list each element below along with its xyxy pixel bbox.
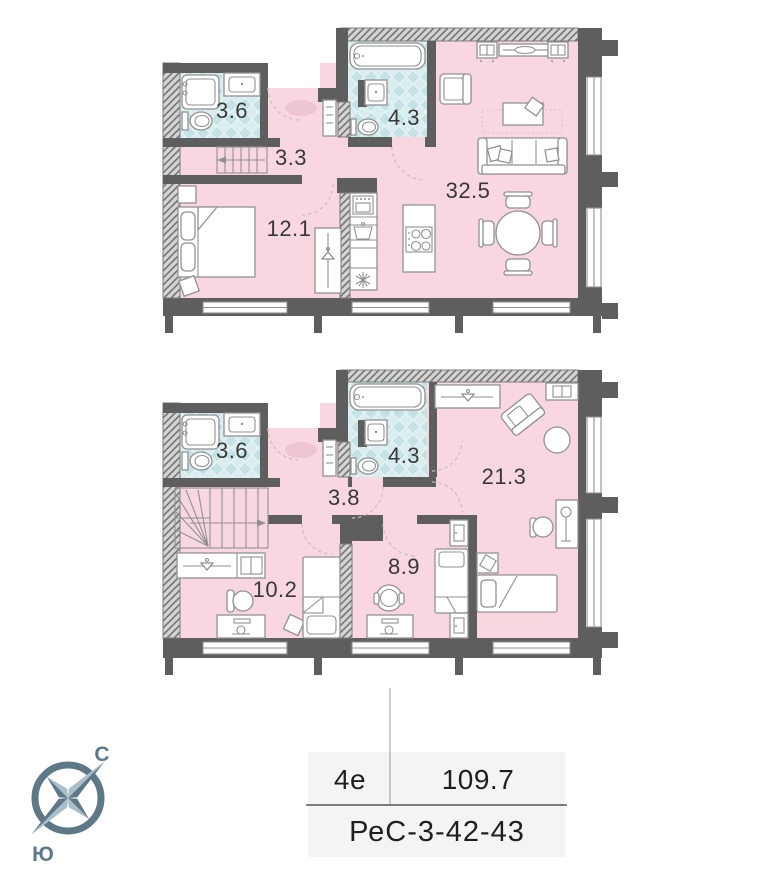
kitchen-counter-icon: [350, 193, 377, 290]
sink-icon: [365, 80, 387, 105]
room-area-label-hallway: 3.8: [328, 485, 360, 510]
room-area-label-bathroom: 3.6: [216, 98, 248, 123]
apartment-info-table: 4е 109.7 РеС-3-42-43: [306, 688, 567, 857]
single-bed-icon: [303, 557, 340, 638]
compass-rose: С Ю: [10, 740, 126, 866]
lower-floor-plan: 3.6 4.3 3.8 21.3 10.2 8.9: [163, 370, 618, 675]
single-bed-icon: [435, 549, 468, 613]
kitchen-island-icon: [403, 205, 435, 272]
laundry-icon: [323, 440, 336, 476]
toilet-icon: [182, 112, 212, 130]
wardrobe-icon: [315, 228, 341, 293]
desk-icon: [367, 615, 413, 638]
bathtub-icon: [350, 384, 425, 410]
laundry-icon: [323, 100, 336, 136]
room-area-label-bathroom-2: 4.3: [388, 443, 420, 468]
room-area-label-bathroom-2: 4.3: [388, 105, 420, 130]
side-table-icon: [477, 553, 498, 573]
shelf-icon: [546, 383, 578, 400]
toilet-icon: [351, 458, 378, 474]
toilet-icon: [182, 452, 212, 470]
room-area-label-living: 32.5: [446, 178, 491, 203]
chair-icon: [530, 517, 553, 537]
compass-south-label: Ю: [32, 843, 54, 866]
sofa-icon: [478, 138, 567, 174]
upper-floor-plan: 3.6 3.3 4.3 32.5 12.1: [163, 28, 618, 333]
hallway-rug: [285, 442, 317, 458]
desk-icon: [217, 615, 265, 638]
apartment-code-value: РеС-3-42-43: [349, 816, 525, 848]
armchair-icon: [440, 74, 471, 104]
room-area-label-bedroom: 21.3: [482, 464, 527, 489]
sideboard-icon: [499, 44, 552, 56]
room-area-label-bedroom-3: 8.9: [388, 554, 420, 579]
shower-icon: [182, 75, 219, 109]
plan-type-value: 4е: [334, 764, 366, 795]
desk-icon: [556, 500, 578, 548]
cabinet-icon: [450, 520, 468, 546]
sink-icon: [224, 73, 260, 96]
side-table-icon: [544, 427, 570, 453]
cabinet-icon: [450, 613, 468, 638]
shower-icon: [182, 415, 219, 449]
lower-hall-wardrobe: [177, 553, 265, 578]
total-area-value: 109.7: [442, 764, 515, 795]
toilet-icon: [351, 119, 378, 135]
bathtub-icon: [350, 43, 425, 69]
room-area-label-hallway: 3.3: [275, 145, 307, 170]
floor-plan-page: 3.6 3.3 4.3 32.5 12.1: [0, 0, 760, 890]
compass-north-label: С: [94, 743, 109, 766]
hallway-rug: [285, 100, 317, 116]
wardrobe-icon: [435, 385, 500, 408]
double-bed-icon: [178, 207, 255, 277]
room-area-label-bedroom: 12.1: [267, 216, 312, 241]
single-bed-icon: [477, 575, 557, 612]
room-area-label-bathroom: 3.6: [216, 438, 248, 463]
chair-icon: [227, 590, 253, 612]
floor-plan-drawing: 3.6 3.3 4.3 32.5 12.1: [0, 0, 760, 890]
room-area-label-bedroom-2: 10.2: [253, 577, 298, 602]
sink-icon: [365, 420, 387, 445]
nightstand-icon: [178, 186, 196, 203]
sink-icon: [224, 413, 260, 436]
